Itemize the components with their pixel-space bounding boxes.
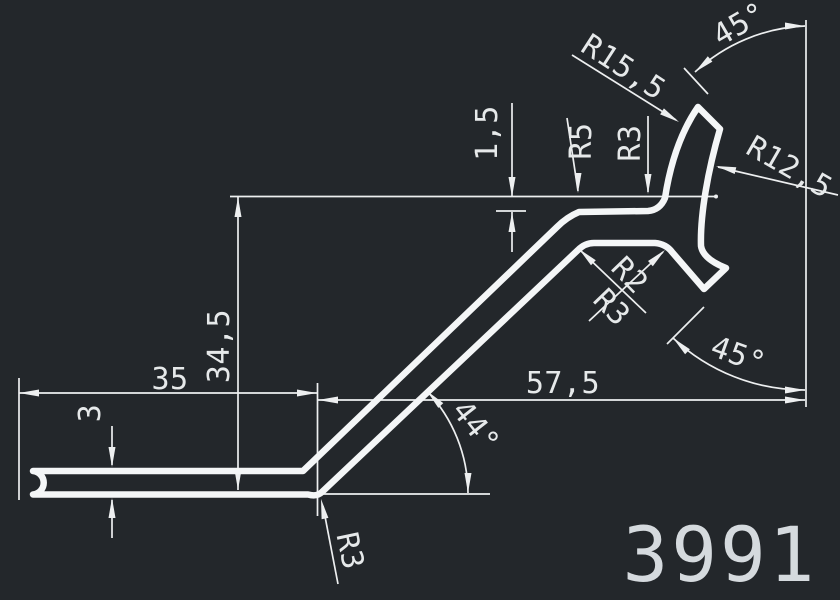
dimension-lines [19,26,838,584]
dim-overall-height: 34,5 [205,309,235,383]
dim-right-top-fillet: R3 [616,124,646,161]
dim-top-offset: 1,5 [473,105,503,161]
part-number: 3991 [622,517,817,593]
dim-bend-radius: R3 [330,530,367,573]
dim-left-top-fillet: R5 [567,122,597,159]
dim-wall-thickness: 3 [76,404,106,423]
dim-diagonal-span: 57,5 [526,369,600,399]
dim-base-length: 35 [151,365,188,395]
cad-drawing-canvas: 45° R15,5 R12,5 1,5 R5 R3 34,5 35 3 R2 R… [0,0,840,600]
